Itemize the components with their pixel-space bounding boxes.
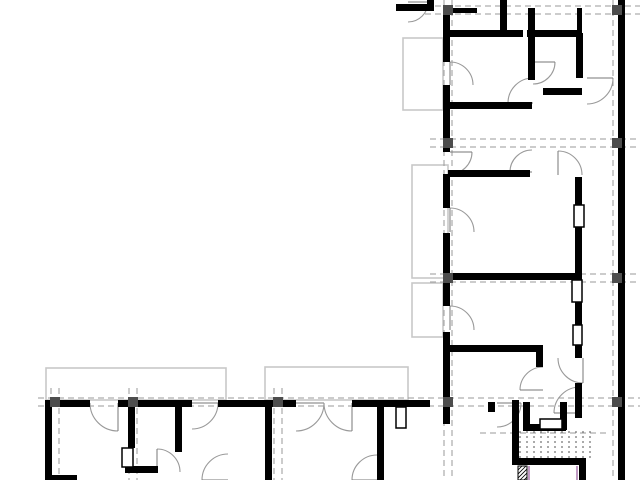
- balcony-outline-layer: [46, 38, 448, 400]
- wall-layer: [45, 0, 625, 480]
- floor-plan-drawing: [0, 0, 640, 480]
- elevator-shaft: [504, 466, 577, 480]
- floor-plan-page: [0, 0, 640, 480]
- staircase-treads: [520, 431, 590, 459]
